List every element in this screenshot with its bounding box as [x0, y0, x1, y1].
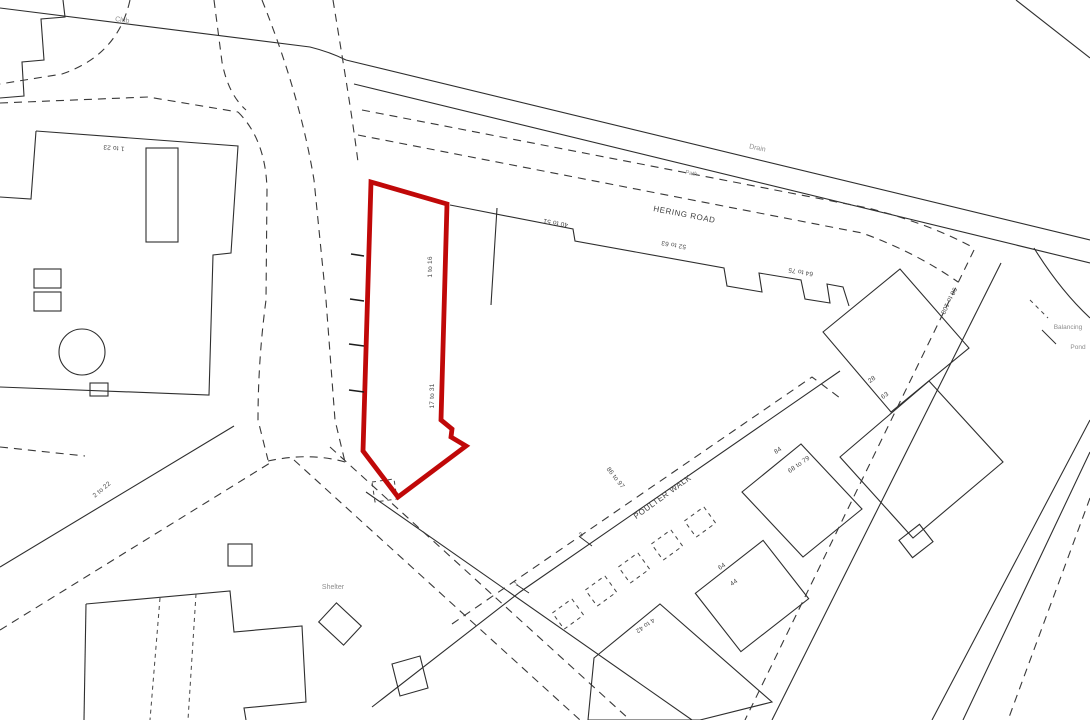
planter-dashed — [684, 507, 715, 537]
road-edge — [0, 8, 346, 60]
building-outline — [0, 131, 36, 199]
building-outline — [86, 591, 306, 720]
road-edge — [354, 84, 1090, 263]
house-range-label: 86 to 97 — [605, 466, 626, 490]
shelter-label: Shelter — [322, 584, 345, 591]
house-range-label: 1 to 23 — [103, 143, 125, 152]
parcel-boundary-dashed — [238, 112, 268, 460]
road-edge — [0, 426, 234, 567]
club-label: Club — [115, 16, 130, 25]
house-number-label: 28 — [867, 375, 877, 385]
herring-terrace: 40 to 51 52 to 63 64 to 75 — [450, 205, 849, 306]
shelter-outline — [319, 603, 362, 645]
house-range-label: 98 to 108 — [939, 286, 958, 315]
house-range-label: 1 to 16 — [427, 256, 434, 277]
porch-outline — [34, 292, 61, 311]
pond-mark — [1042, 330, 1056, 344]
street-label-hering-road: HERING ROAD — [653, 204, 717, 225]
round-structure — [59, 329, 105, 375]
road-edge — [366, 492, 692, 720]
road-boundary-dashed — [1008, 498, 1090, 720]
path-label: Path — [685, 170, 698, 178]
small-structure — [90, 383, 108, 396]
building-outline — [840, 381, 1003, 538]
road-boundary-dashed — [452, 377, 840, 624]
building-outline — [588, 604, 772, 720]
house-range-label: 68 to 79 — [787, 455, 812, 475]
building-outline — [450, 205, 849, 306]
southeast-buildings: 84 68 to 79 64 44 — [588, 444, 862, 720]
planter-dashed — [618, 553, 649, 583]
house-range-label: 2 to 22 — [92, 480, 113, 499]
road-boundary-dashed — [745, 250, 974, 720]
house-number-label: 3 — [578, 531, 585, 538]
road-boundary-dashed — [262, 0, 345, 462]
road-boundary-dashed — [214, 0, 246, 110]
house-number-label: 64 — [717, 562, 727, 572]
small-structure — [899, 524, 933, 557]
lower-road — [294, 447, 692, 720]
house-range-label: 4 to 42 — [634, 616, 656, 634]
building-outline — [84, 604, 86, 720]
road-boundary-dashed — [0, 463, 270, 630]
planter-dashed — [552, 599, 583, 629]
road-boundary-dashed — [333, 0, 358, 162]
map-canvas: Club 1 to 23 2 to 22 Shelter — [0, 0, 1090, 720]
boundary-dashed — [1030, 300, 1048, 318]
small-structure — [392, 656, 428, 696]
left-building-cluster: 1 to 23 — [0, 97, 268, 460]
central-road — [262, 0, 358, 462]
site-boundary — [363, 182, 466, 497]
boundary-ticks — [349, 254, 364, 392]
balancing-pond-label: Balancing — [1054, 324, 1083, 331]
parcel-boundary-dashed — [0, 97, 238, 112]
house-range-label: 52 to 63 — [661, 239, 687, 250]
porch-outline — [34, 269, 61, 288]
house-range-label: 17 to 31 — [429, 383, 436, 408]
building-outline — [491, 208, 497, 305]
road-edge — [772, 263, 1001, 720]
hering-road-band: Drain Path HERING ROAD — [346, 0, 1090, 282]
house-number-label: 84 — [773, 446, 783, 456]
right-road: 98 to 108 Balancing Pond — [745, 248, 1090, 720]
road-boundary-dashed — [268, 457, 345, 462]
building-outline — [695, 540, 808, 651]
drain-label: Drain — [748, 143, 766, 153]
road-edge — [1034, 248, 1090, 318]
tower-outline — [146, 148, 178, 242]
small-structure — [228, 544, 252, 566]
house-range-label: 40 to 51 — [543, 217, 569, 228]
bottom-right-lines — [932, 420, 1090, 720]
site-plot: 1 to 16 17 to 31 — [349, 182, 466, 497]
road-edge — [963, 452, 1090, 720]
house-range-label: 64 to 75 — [788, 266, 814, 277]
boundary-dashed — [0, 447, 85, 456]
house-number-label: 63 — [880, 391, 890, 401]
road-edge — [932, 420, 1090, 720]
house-number-label: 44 — [729, 578, 739, 588]
road-edge — [346, 60, 1090, 240]
building-outline — [0, 131, 238, 395]
boundary-dashed — [188, 594, 196, 720]
road-boundary-dashed — [362, 110, 974, 248]
road-boundary-dashed — [330, 447, 630, 720]
balancing-pond-label: Pond — [1070, 344, 1086, 351]
plot-ticks — [517, 537, 592, 593]
boundary-dashed — [150, 598, 160, 720]
planter-dashed — [585, 576, 616, 606]
street-label-poulter-walk: POULTER WALK — [632, 473, 693, 521]
planter-dashed — [651, 530, 682, 560]
road-edge — [1016, 0, 1090, 58]
site-plan-map: Club 1 to 23 2 to 22 Shelter — [0, 0, 1090, 720]
building-outline — [823, 269, 969, 412]
bottom-left-block: Shelter — [84, 544, 361, 720]
